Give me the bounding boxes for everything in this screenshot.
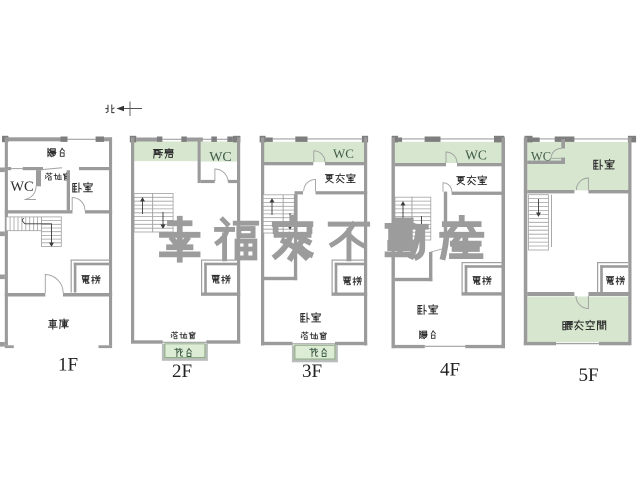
svg-text:WC: WC	[465, 148, 487, 163]
svg-text:WC: WC	[333, 146, 354, 161]
svg-text:WC: WC	[10, 179, 33, 195]
svg-text:2F: 2F	[172, 361, 192, 382]
svg-text:3F: 3F	[302, 361, 322, 382]
svg-text:1F: 1F	[58, 355, 78, 376]
svg-text:4F: 4F	[440, 360, 460, 381]
svg-text:5F: 5F	[578, 365, 598, 386]
svg-text:WC: WC	[209, 150, 232, 165]
